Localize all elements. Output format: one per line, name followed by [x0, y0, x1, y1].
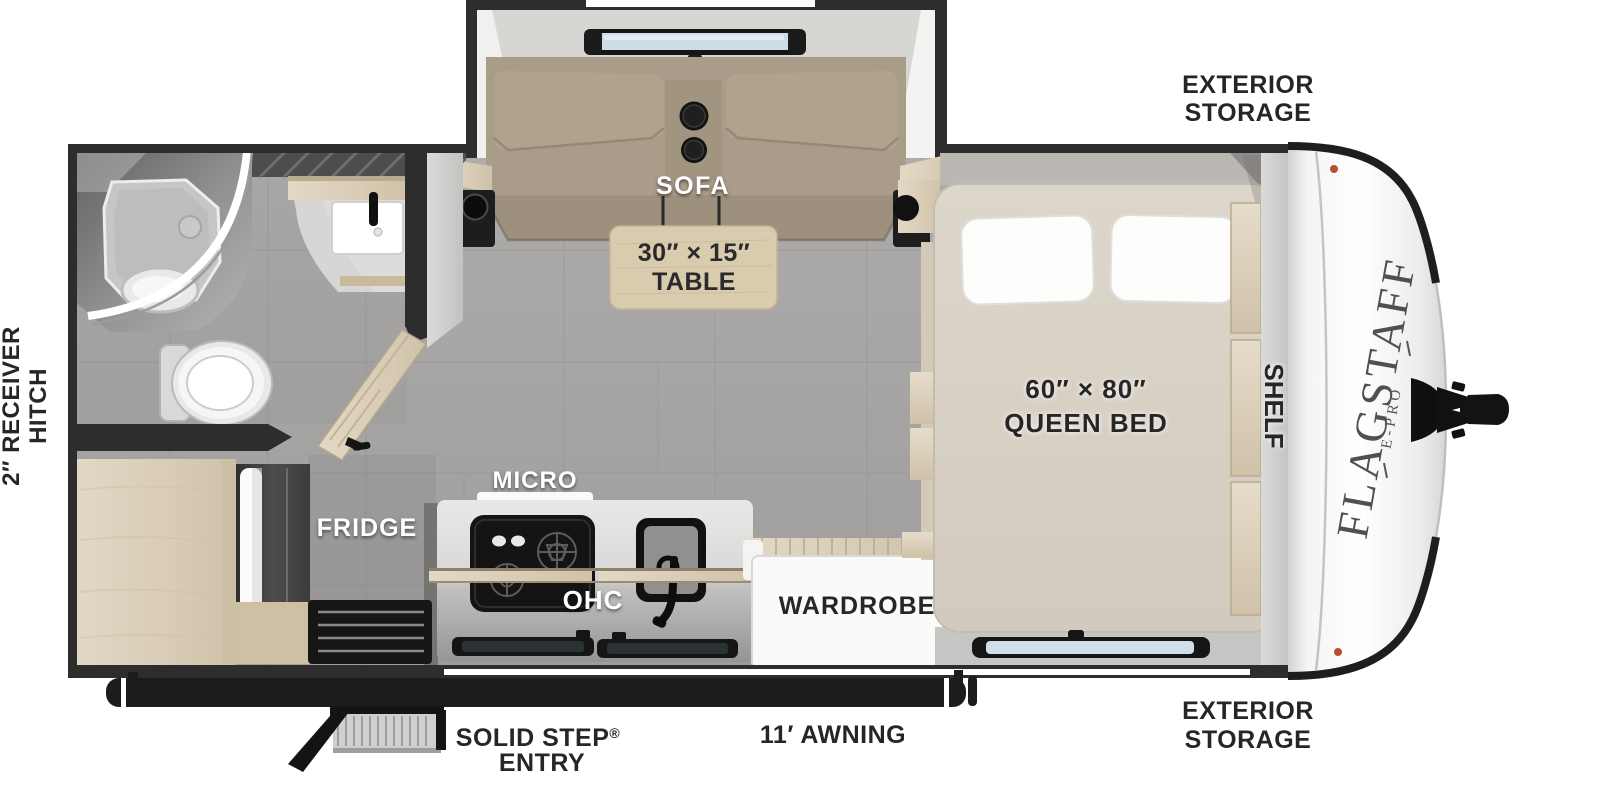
svg-text:60″ × 80″: 60″ × 80″	[1025, 374, 1146, 404]
svg-text:EXTERIOR: EXTERIOR	[1182, 697, 1314, 725]
svg-text:STORAGE: STORAGE	[1185, 99, 1312, 127]
svg-text:EXTERIOR: EXTERIOR	[1182, 71, 1314, 99]
svg-text:2″ RECEIVER: 2″ RECEIVER	[0, 326, 25, 486]
svg-text:MICRO: MICRO	[493, 467, 578, 494]
svg-text:WARDROBE: WARDROBE	[779, 592, 936, 620]
svg-text:TABLE: TABLE	[652, 268, 736, 296]
svg-text:STORAGE: STORAGE	[1185, 726, 1312, 754]
svg-text:ENTRY: ENTRY	[499, 749, 585, 777]
svg-text:SOLID STEP®: SOLID STEP®	[456, 724, 621, 752]
svg-text:30″ × 15″: 30″ × 15″	[638, 239, 751, 267]
svg-text:SHELF: SHELF	[1259, 363, 1289, 448]
svg-text:OHC: OHC	[563, 585, 624, 615]
svg-text:SOFA: SOFA	[656, 172, 730, 200]
svg-text:FRIDGE: FRIDGE	[317, 514, 417, 542]
svg-text:11′ AWNING: 11′ AWNING	[760, 721, 906, 749]
svg-text:QUEEN BED: QUEEN BED	[1004, 408, 1168, 438]
svg-text:HITCH: HITCH	[25, 368, 52, 444]
